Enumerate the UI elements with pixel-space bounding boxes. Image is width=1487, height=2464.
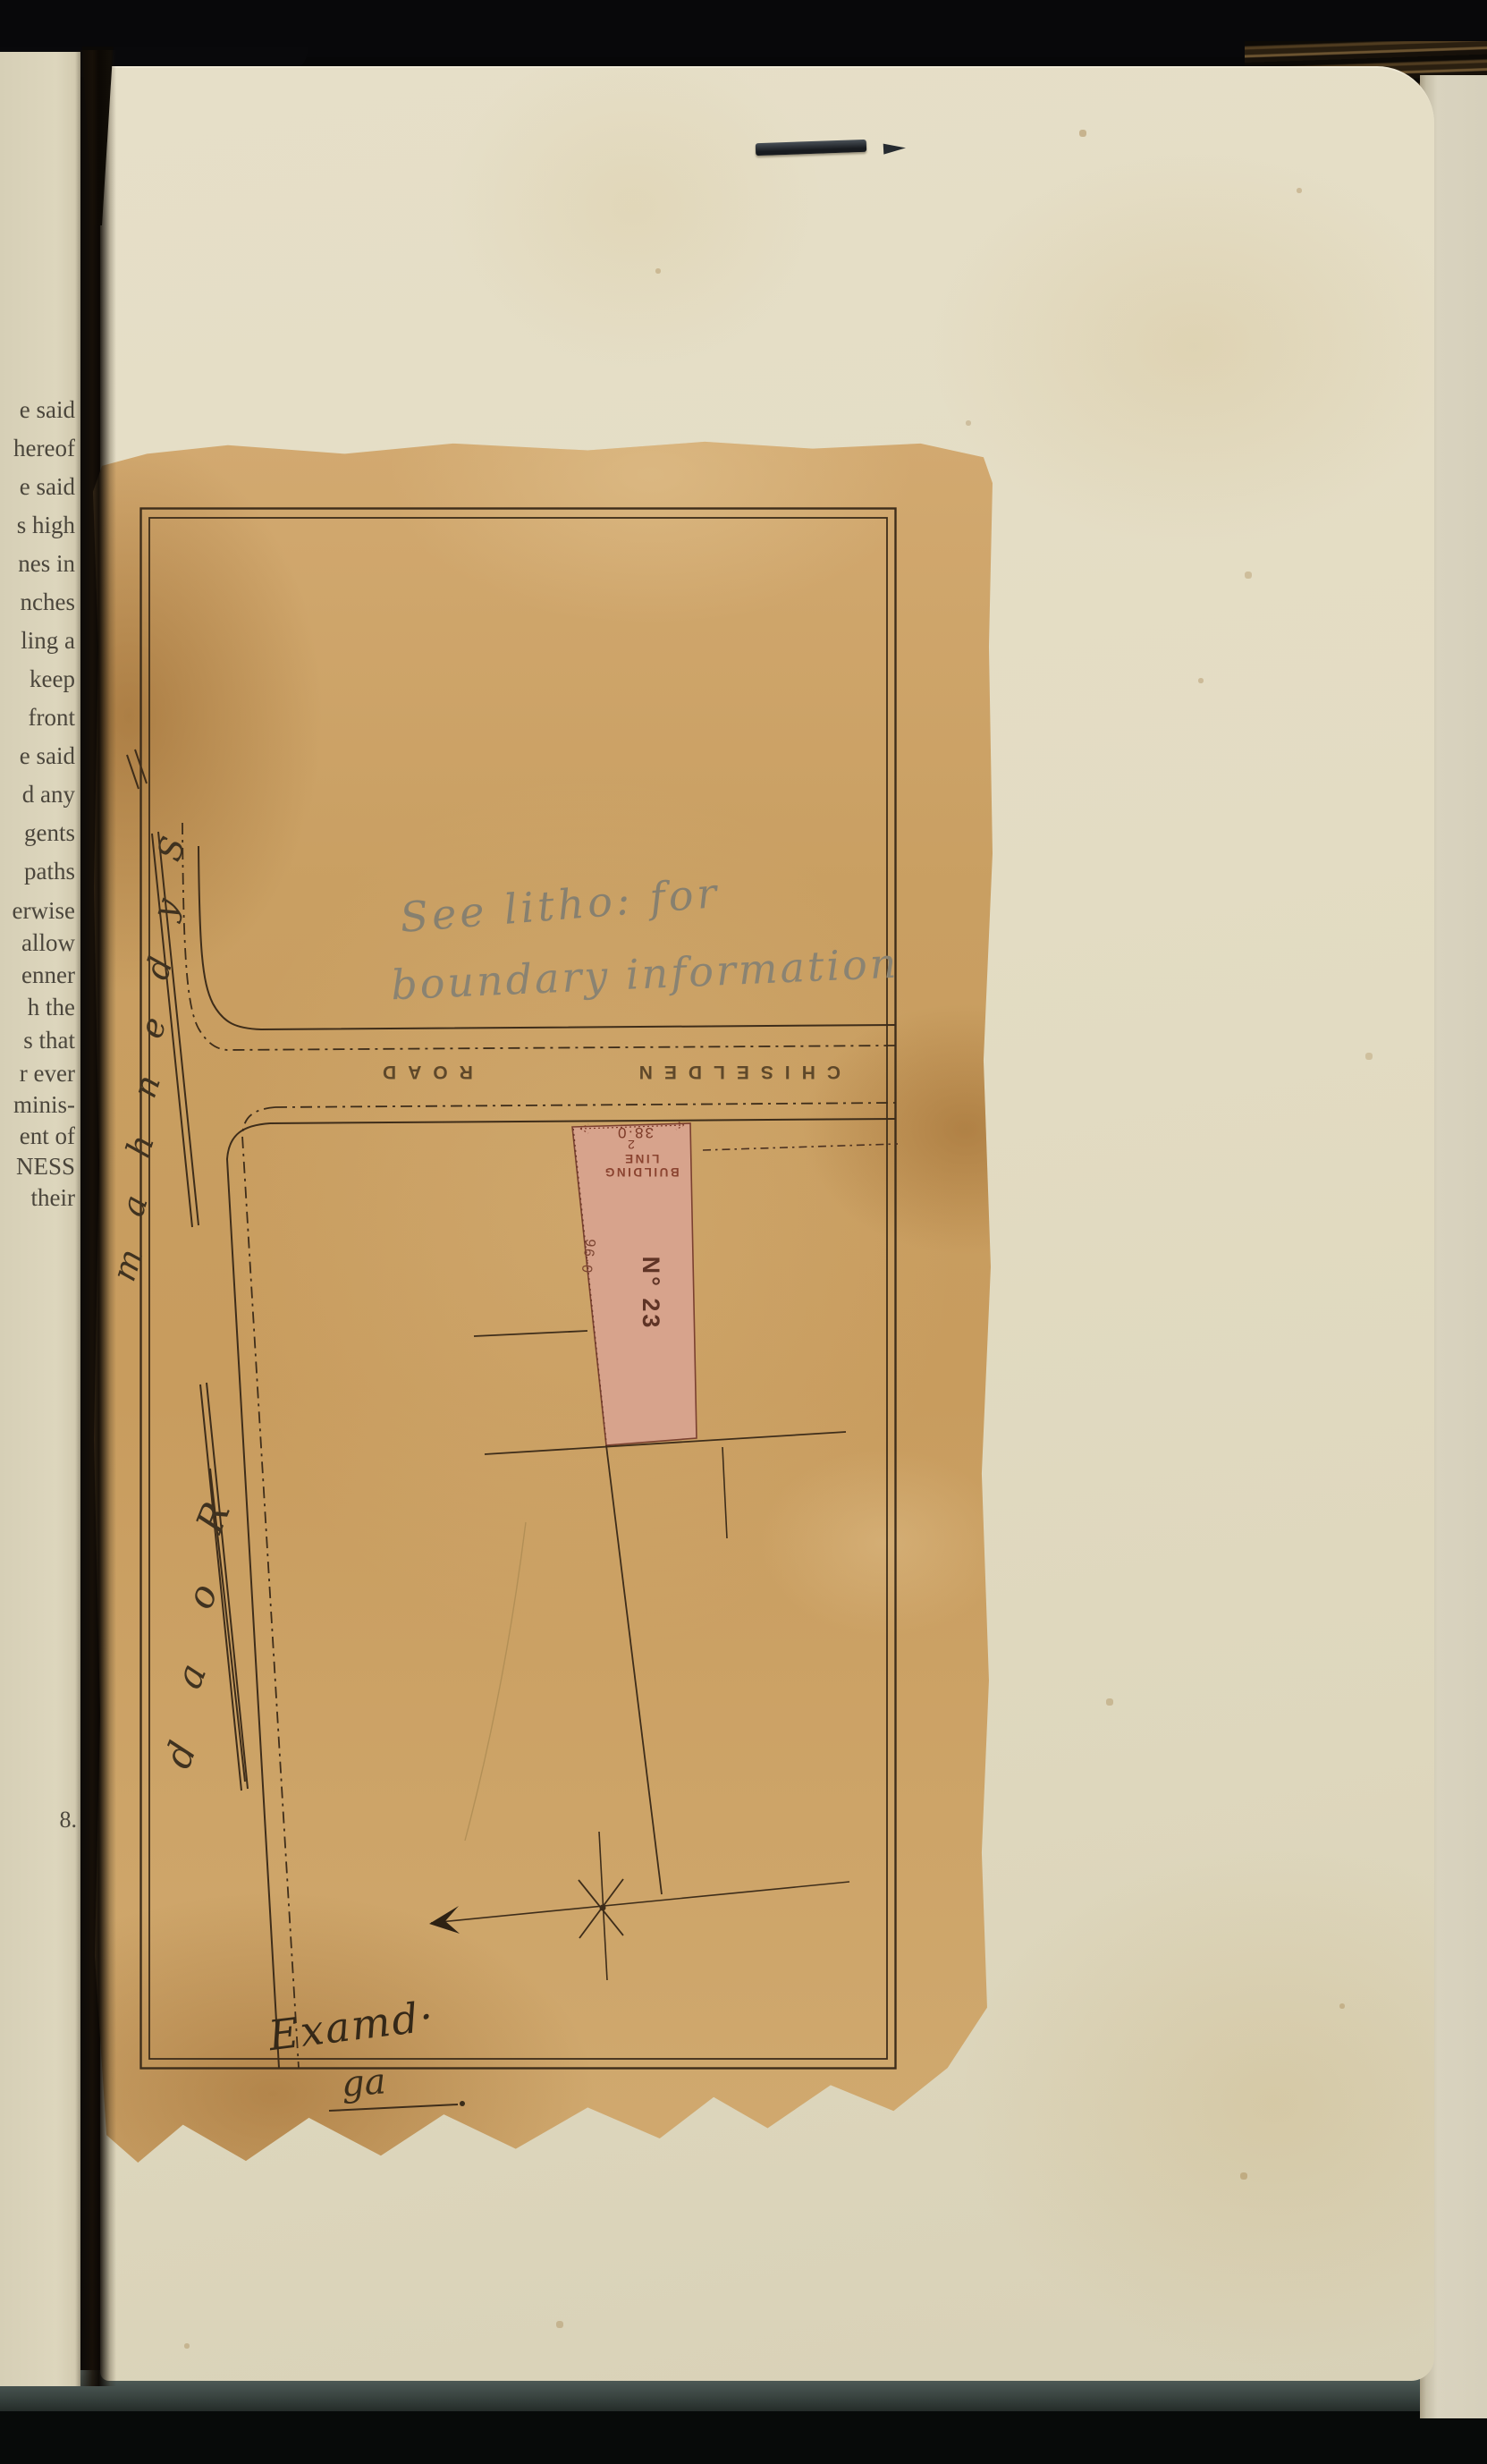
left-page-text-fragment: s high [0, 513, 75, 538]
left-page-text-fragment: front [0, 706, 75, 730]
pencil-curve [465, 1522, 526, 1841]
facing-page-strip: e said hereof e said s high nes in nches… [0, 52, 80, 2386]
left-page-text-fragment: h the [0, 995, 75, 1020]
left-page-text-fragment: nches [0, 590, 75, 614]
plan-frame-inner [149, 518, 887, 2059]
boundary-line-short [722, 1447, 727, 1538]
left-page-text-fragment: erwise [0, 899, 75, 923]
left-page-text-fragment: r ever [0, 1062, 75, 1086]
boundary-line-west [474, 1331, 587, 1336]
compass-icon [429, 1832, 849, 1980]
chiselden-road-name: CHISELDEN [628, 1061, 841, 1082]
parcel-number-label: N° 23 [613, 1259, 689, 1327]
chiselden-road-label: CHISELDEN ROAD [371, 1061, 841, 1082]
left-page-text-fragment: e said [0, 475, 75, 499]
left-page-text-fragment: d any [0, 783, 75, 807]
building-line-label: BUILDING LINE [583, 1152, 699, 1179]
chiselden-road-north-dashed [182, 823, 896, 1050]
sydenham-road-east-line [227, 1123, 279, 2068]
left-page-text-fragment: e said [0, 744, 75, 768]
initials-underline [329, 2104, 458, 2111]
left-page-text-fragment: gents [0, 821, 75, 845]
left-page-margin-mark: 8. [2, 1808, 77, 1832]
left-page-text-fragment: minis- [0, 1093, 75, 1117]
parcel-small-mark: 2 [621, 1138, 642, 1152]
left-page-text-fragment: e said [0, 398, 75, 422]
left-page-text-fragment: hereof [0, 436, 75, 461]
left-page-text-fragment: enner [0, 963, 75, 987]
chiselden-road-south-line [270, 1119, 896, 1123]
plan-linework [0, 0, 1487, 2464]
left-page-text-fragment: their [0, 1186, 75, 1210]
left-page-text-fragment: NESS [0, 1155, 75, 1179]
chiselden-road-suffix: ROAD [371, 1061, 473, 1082]
building-line [703, 1144, 898, 1150]
left-page-text-fragment: allow [0, 931, 75, 955]
examiner-initials: ga [340, 2061, 387, 2104]
staple-tip-icon [883, 142, 907, 154]
left-page-text-fragment: ling a [0, 629, 75, 653]
compass-arrowhead [429, 1906, 460, 1934]
initials-underline-dot [460, 2101, 465, 2106]
left-page-text-fragment: paths [0, 859, 75, 884]
plan-frame-outer [141, 509, 896, 2069]
chiselden-road-south-dashed [275, 1103, 896, 1107]
left-page-text-fragment: nes in [0, 552, 75, 576]
left-page-text-fragment: ent of [0, 1124, 75, 1148]
left-page-text-fragment: keep [0, 667, 75, 691]
boundary-line-slant [606, 1445, 662, 1894]
left-page-text-fragment: s that [0, 1029, 75, 1053]
gutter-shadow [75, 50, 116, 2386]
